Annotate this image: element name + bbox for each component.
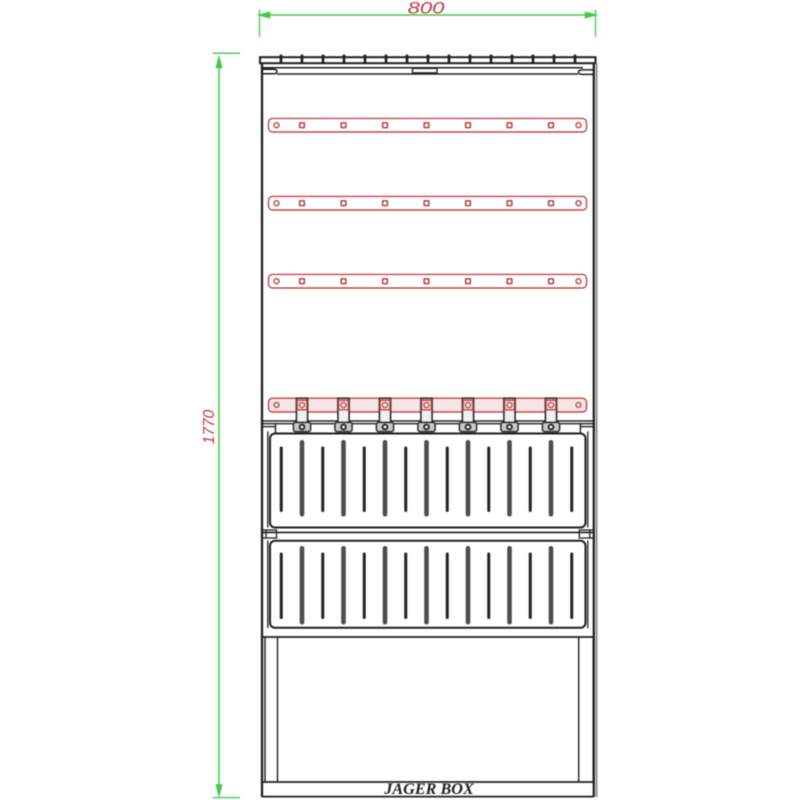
svg-text:JAGER BOX: JAGER BOX: [383, 780, 475, 798]
svg-text:1770: 1770: [201, 409, 218, 444]
svg-text:800: 800: [408, 0, 446, 18]
